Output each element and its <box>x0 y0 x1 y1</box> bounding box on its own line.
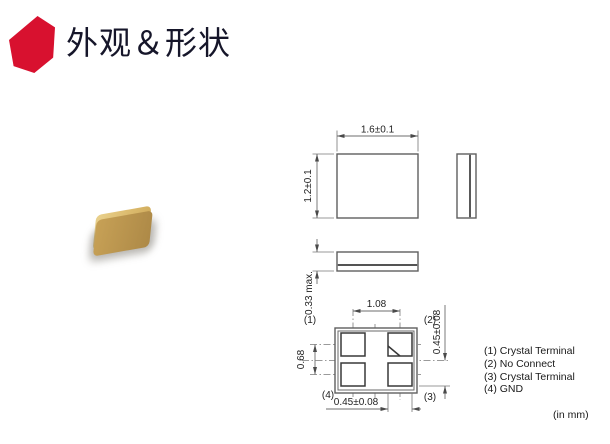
pin-label-3: (3) <box>424 392 436 403</box>
top-view <box>337 154 418 218</box>
dim-body-width: 1.6±0.1 <box>337 125 418 152</box>
dim-pad-pitch-x-label: 1.08 <box>367 299 387 310</box>
dimension-drawing: 1.6±0.1 1.2±0.1 0.33 max. <box>290 113 490 438</box>
dim-thickness-label: 0.33 max. <box>304 271 315 315</box>
units-note: (in mm) <box>553 409 589 421</box>
pad-2 <box>388 333 412 356</box>
pad-4 <box>341 363 365 386</box>
crystal-package-photo <box>93 206 152 251</box>
legend-item-3: (3) Crystal Terminal <box>484 371 575 384</box>
side-view-right <box>457 154 476 218</box>
legend-item-2: (2) No Connect <box>484 358 575 371</box>
terminal-legend: (1) Crystal Terminal (2) No Connect (3) … <box>484 345 575 396</box>
dim-pad-pitch-y-label: 0.68 <box>296 349 307 369</box>
dim-pad-width-label: 0.45±0.08 <box>334 397 379 408</box>
page-title: 外观＆形状 <box>66 24 231 62</box>
pin-label-2: (2) <box>424 315 436 326</box>
red-parallelogram-icon <box>9 16 55 73</box>
pad-3 <box>388 363 412 386</box>
dim-thickness: 0.33 max. <box>304 239 334 315</box>
pin-label-4: (4) <box>322 390 334 401</box>
dim-body-width-label: 1.6±0.1 <box>361 125 395 136</box>
side-view-bottom <box>337 252 418 271</box>
dim-pad-pitch-y: 0.68 <box>296 345 317 375</box>
pad-1 <box>341 333 365 356</box>
dim-body-height: 1.2±0.1 <box>303 154 334 218</box>
dim-pad-width: 0.45±0.08 <box>326 393 421 412</box>
datasheet-page: { "header": { "title": "外观＆形状" }, "color… <box>0 0 610 444</box>
dim-body-height-label: 1.2±0.1 <box>303 169 314 203</box>
legend-item-4: (4) GND <box>484 383 575 396</box>
dim-pad-pitch-x: 1.08 <box>353 299 400 313</box>
legend-item-1: (1) Crystal Terminal <box>484 345 575 358</box>
pin-label-1: (1) <box>304 315 316 326</box>
